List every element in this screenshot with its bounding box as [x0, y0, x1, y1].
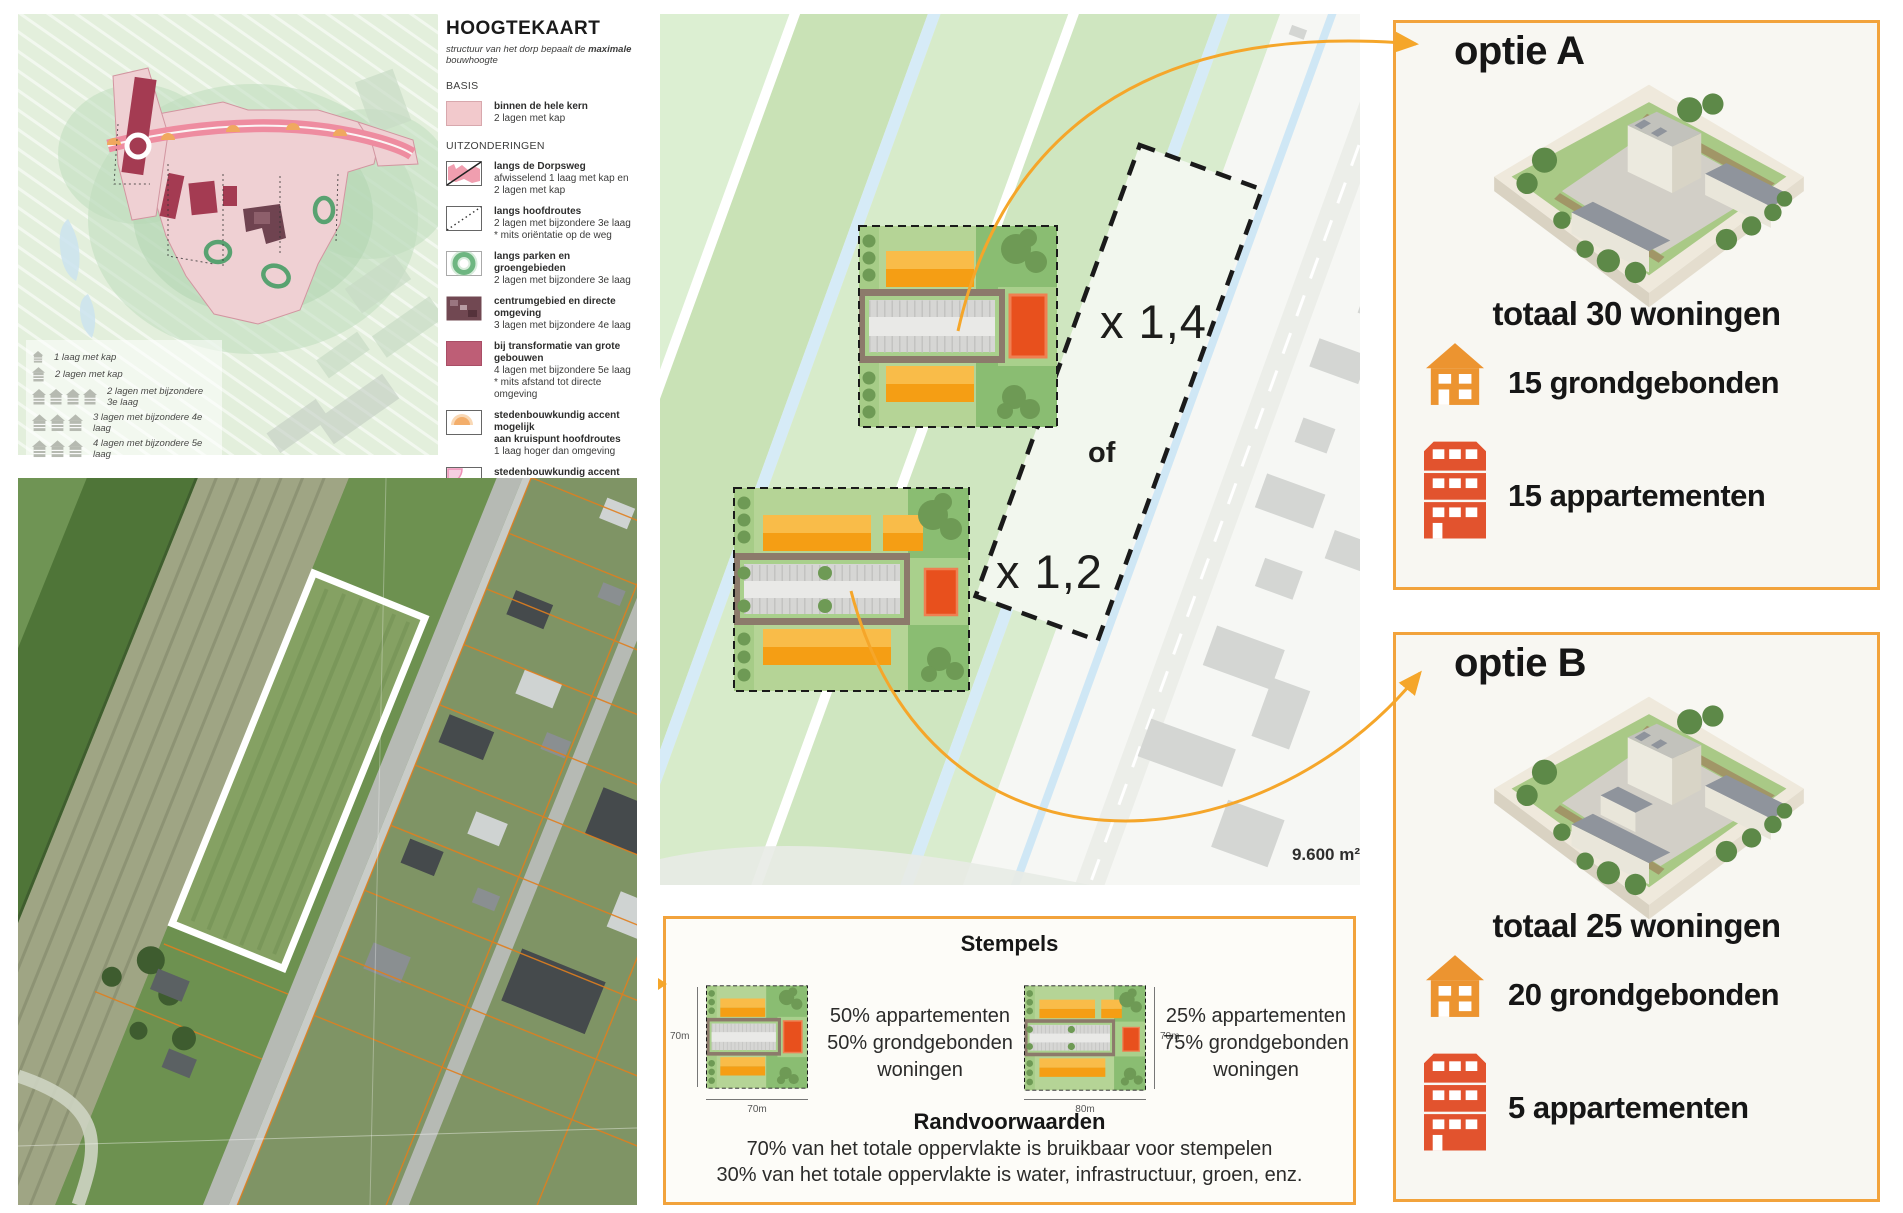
optie-a-title: optie A	[1454, 29, 1585, 74]
section-uitzonderingen: UITZONDERINGEN	[446, 140, 634, 152]
building-icons	[32, 414, 83, 432]
optie-a-appartementen: 15 appartementen	[1508, 478, 1765, 514]
stamp-small-caption: 50% appartementen 50% grondgebonden woni…	[814, 1003, 1026, 1084]
swatch-dorpsweg-icon	[446, 161, 482, 186]
stempels-panel: Stempels 70m 70m 50% appartementen 50% g…	[663, 916, 1356, 1205]
or-label: of	[1088, 437, 1115, 470]
swatch-parken-icon	[446, 251, 482, 276]
density-factor-bottom: x 1,2	[996, 544, 1103, 599]
legend-entry: langs de Dorpsweg afwisselend 1 laag met…	[446, 161, 634, 197]
dim-line	[706, 1099, 808, 1100]
key-row: 4 lagen met bijzondere 5e laag	[32, 438, 216, 460]
house-icon	[1426, 955, 1484, 1017]
swatch-accent-hoofdroutes-icon	[446, 410, 482, 435]
stamp-option-a	[859, 226, 1057, 427]
optie-b-total: totaal 25 woningen	[1396, 907, 1877, 945]
optie-b-render	[1484, 687, 1814, 927]
panel-pointer-icon	[658, 978, 667, 990]
building-icon	[32, 367, 45, 382]
swatch-hoofdroutes-icon	[446, 206, 482, 231]
optie-b-grondgebonden: 20 grondgebonden	[1508, 977, 1779, 1013]
building-height-key: 1 laag met kap 2 lagen met kap 2 lagen m…	[26, 340, 222, 471]
condition-line: 70% van het totale oppervlakte is bruikb…	[666, 1138, 1353, 1161]
section-basis: BASIS	[446, 80, 634, 92]
swatch-centrumgebied-icon	[446, 296, 482, 321]
legend-entry: binnen de hele kern 2 lagen met kap	[446, 101, 634, 126]
optie-b-title: optie B	[1454, 641, 1586, 686]
optie-a-total: totaal 30 woningen	[1396, 295, 1877, 333]
building-icons	[32, 389, 97, 405]
planning-board: 1 laag met kap 2 lagen met kap 2 lagen m…	[0, 0, 1903, 1213]
legend-entry: bij transformatie van grote gebouwen 4 l…	[446, 341, 634, 401]
legend-entry: langs hoofdroutes 2 lagen met bijzondere…	[446, 206, 634, 242]
optie-b-panel: optie B totaal 25 woningen 20 grondgebon…	[1393, 632, 1880, 1202]
swatch-binnen-kern-icon	[446, 101, 482, 126]
density-factor-top: x 1,4	[1100, 294, 1207, 349]
stamp-wide-caption: 25% appartementen 75% grondgebonden woni…	[1158, 1003, 1354, 1084]
optie-a-grondgebonden: 15 grondgebonden	[1508, 365, 1779, 401]
legend-entry: centrumgebied en directe omgeving 3 lage…	[446, 296, 634, 332]
building-icon	[32, 351, 44, 363]
key-row: 1 laag met kap	[32, 351, 216, 363]
key-row: 2 lagen met kap	[32, 367, 216, 382]
dim-line	[1154, 987, 1155, 1089]
dim-line	[1024, 1099, 1146, 1100]
stamp-wide-diagram	[1024, 985, 1146, 1091]
swatch-transformatie-icon	[446, 341, 482, 366]
aerial-photo	[18, 478, 637, 1205]
legend-entry: langs parken en groengebieden 2 lagen me…	[446, 251, 634, 287]
dim-label-side: 70m	[670, 1031, 689, 1042]
apartment-icon	[1424, 1053, 1486, 1151]
building-icons	[32, 439, 83, 459]
condition-line: 30% van het totale oppervlakte is water,…	[666, 1164, 1353, 1187]
randvoorwaarden-title: Randvoorwaarden	[666, 1109, 1353, 1135]
legend-subtitle: structuur van het dorp bepaalt de maxima…	[446, 44, 634, 66]
house-icon	[1426, 343, 1484, 405]
key-row: 2 lagen met bijzondere 3e laag	[32, 386, 216, 408]
stamp-small-diagram	[706, 985, 808, 1089]
legend-title: HOOGTEKAART	[446, 18, 634, 40]
dim-line	[697, 987, 698, 1087]
legend-entry: stedenbouwkundig accent mogelijk aan kru…	[446, 410, 634, 458]
stamp-option-b	[734, 488, 969, 691]
stempels-title: Stempels	[666, 931, 1353, 957]
optie-a-render	[1484, 75, 1814, 315]
optie-b-appartementen: 5 appartementen	[1508, 1090, 1749, 1126]
apartment-icon	[1424, 441, 1486, 539]
optie-a-panel: optie A totaal 30 woningen 15 grondgebon…	[1393, 20, 1880, 590]
parcel-area-label: 9.600 m²	[1180, 845, 1360, 865]
site-plan-map	[660, 14, 1360, 885]
key-row: 3 lagen met bijzondere 4e laag	[32, 412, 216, 434]
